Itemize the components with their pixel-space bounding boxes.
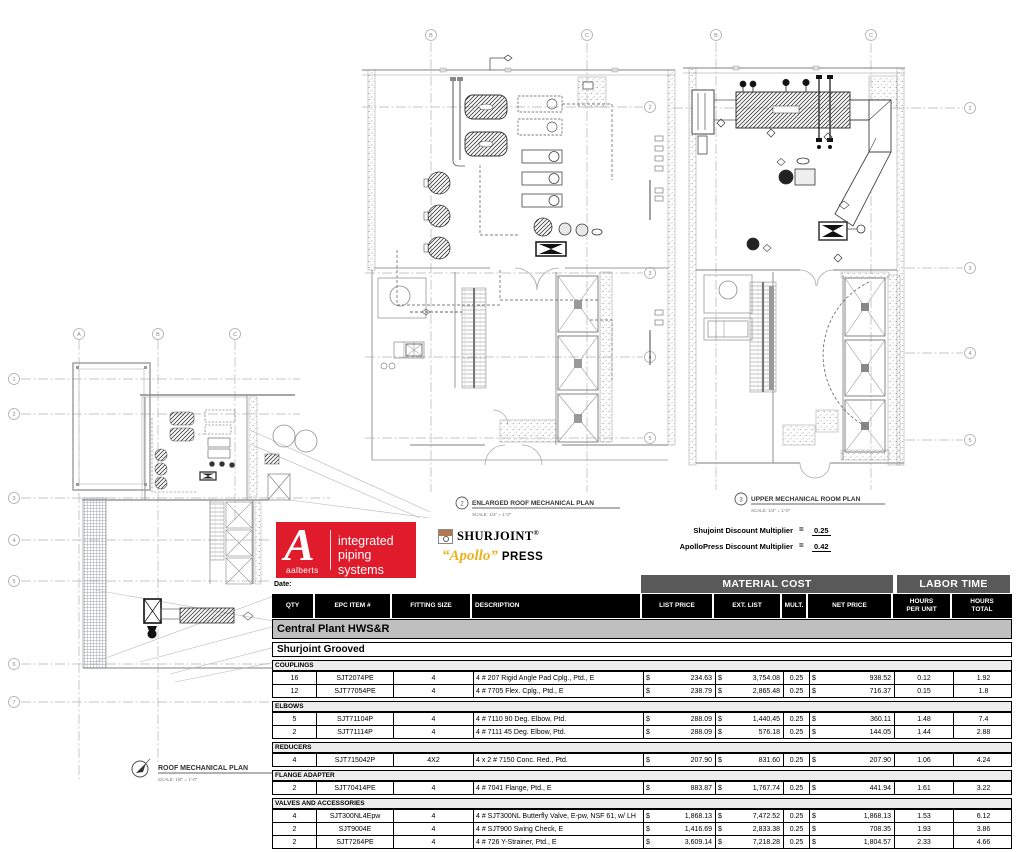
epc-cell: SJT7264PE — [316, 836, 393, 848]
grid-bubbles: A B C 1 2 3 4 5 6 7 — [9, 329, 241, 708]
storage-tanks — [424, 172, 450, 259]
list-cell: $288.09 — [643, 726, 715, 738]
room-walls — [362, 68, 675, 460]
desc-cell: 4 # 7705 Flex. Cplg., Ptd., E — [473, 685, 643, 697]
desc-cell: 4 # SJT900 Swing Check, E — [473, 823, 643, 835]
list-cell: $207.90 — [643, 754, 715, 766]
list-cell: $883.87 — [643, 782, 715, 794]
desc-cell: 4 # 207 Rigid Angle Pad Cplg., Ptd., E — [473, 672, 643, 684]
table-row: 2SJT71114P44 # 7111 45 Deg. Elbow, Ptd.$… — [273, 725, 1011, 738]
list-cell: $1,868.13 — [643, 810, 715, 822]
mult-cell: 0.25 — [783, 836, 809, 848]
size-cell: 4 — [393, 810, 473, 822]
svg-text:C: C — [869, 33, 873, 39]
hpu-cell: 1.48 — [894, 713, 953, 725]
tagline-line2: piping systems — [338, 548, 416, 577]
table-row: 4SJT715042P4X24 x 2 # 7150 Conc. Red., P… — [273, 754, 1011, 766]
aalberts-tagline: integrated piping systems — [338, 534, 416, 577]
category-row: VALVES AND ACCESSORIES — [272, 798, 1012, 809]
category-rows: 4SJT300NL4Epw44 # SJT300NL Butterfly Val… — [272, 809, 1012, 849]
cost-table-body: Central Plant HWS&R Shurjoint Grooved CO… — [272, 619, 1012, 852]
header-cell-size: FITTING SIZE — [392, 594, 472, 618]
epc-cell: SJT70414PE — [316, 782, 393, 794]
ext-cell: $7,218.28 — [715, 836, 783, 848]
table-row: 2SJT9004E44 # SJT900 Swing Check, E$1,41… — [273, 822, 1011, 835]
svg-text:2: 2 — [460, 502, 464, 508]
product-family-row: Shurjoint Grooved — [272, 642, 1012, 657]
qty-cell: 4 — [273, 754, 316, 766]
plan1-title-block: ROOF MECHANICAL PLAN SCALE: 1/8" = 1'-0" — [132, 759, 286, 782]
ext-cell: $2,865.48 — [715, 685, 783, 697]
aalberts-brand: aalberts — [286, 565, 319, 575]
hpu-cell: 1.44 — [894, 726, 953, 738]
mult-cell: 0.25 — [783, 810, 809, 822]
mult-cell: 0.25 — [783, 672, 809, 684]
material-cost-band: MATERIAL COST — [641, 575, 893, 593]
category-rows: 16SJT2074PE44 # 207 Rigid Angle Pad Cplg… — [272, 671, 1012, 698]
mult-cell: 0.25 — [783, 754, 809, 766]
svg-text:5: 5 — [968, 438, 971, 444]
hpu-cell: 1.61 — [894, 782, 953, 794]
desc-cell: 4 x 2 # 7150 Conc. Red., Ptd. — [473, 754, 643, 766]
lower-floor — [704, 272, 838, 463]
apollopress-multiplier-value: 0.42 — [812, 542, 831, 552]
fans-and-separator — [534, 218, 602, 256]
svg-text:2: 2 — [648, 105, 651, 111]
svg-text:4: 4 — [12, 538, 15, 544]
boiler-piping — [450, 77, 465, 166]
header-cell-desc: DESCRIPTION — [472, 594, 642, 618]
elevator-bank — [556, 272, 612, 445]
epc-cell: SJT71104P — [316, 713, 393, 725]
crosshatch-roof-strip — [83, 498, 106, 668]
qty-cell: 16 — [273, 672, 316, 684]
header-cell-list: LIST PRICE — [642, 594, 714, 618]
net-cell: $716.37 — [809, 685, 894, 697]
svg-text:C: C — [585, 33, 589, 39]
net-cell: $360.11 — [809, 713, 894, 725]
ext-cell: $576.18 — [715, 726, 783, 738]
hpu-cell: 2.33 — [894, 836, 953, 848]
hpu-cell: 0.12 — [894, 672, 953, 684]
epc-cell: SJT715042P — [316, 754, 393, 766]
table-row: 16SJT2074PE44 # 207 Rigid Angle Pad Cplg… — [273, 672, 1011, 684]
aalberts-logo: A aalberts integrated piping systems — [276, 522, 416, 578]
qty-cell: 2 — [273, 836, 316, 848]
svg-text:7: 7 — [12, 700, 15, 706]
roof-parapet — [73, 363, 150, 490]
enlarged-roof-mechanical-plan-drawing: B C 2 3 4 5 — [350, 20, 680, 520]
category-rows: 5SJT71104P44 # 7110 90 Deg. Elbow, Ptd.$… — [272, 712, 1012, 739]
svg-text:A: A — [77, 332, 81, 338]
plan3-title-block: 3 UPPER MECHANICAL ROOM PLAN SCALE: 1/4"… — [735, 493, 885, 513]
svg-text:ROOF MECHANICAL PLAN: ROOF MECHANICAL PLAN — [158, 765, 248, 772]
net-cell: $708.35 — [809, 823, 894, 835]
category-row: FLANGE ADAPTER — [272, 770, 1012, 781]
size-cell: 4 — [393, 782, 473, 794]
hpu-cell: 1.06 — [894, 754, 953, 766]
shurjoint-multiplier-value: 0.25 — [812, 526, 831, 536]
ht-cell: 1.8 — [953, 685, 1013, 697]
shurjoint-name: SHURJOINT® — [457, 529, 539, 544]
svg-text:SCALE: 1/4" = 1'-0": SCALE: 1/4" = 1'-0" — [472, 512, 512, 517]
ht-cell: 1.92 — [953, 672, 1013, 684]
elevator-bank — [823, 272, 900, 465]
mini-stair-elevators — [210, 502, 252, 584]
svg-text:B: B — [156, 332, 160, 338]
epc-cell: SJT300NL4Epw — [316, 810, 393, 822]
net-cell: $441.94 — [809, 782, 894, 794]
ahu-valves — [740, 79, 809, 92]
rooftop-units-right — [265, 425, 317, 500]
list-cell: $238.79 — [643, 685, 715, 697]
header-cell-net: NET PRICE — [808, 594, 893, 618]
mult-cell: 0.25 — [783, 726, 809, 738]
list-cell: $234.63 — [643, 672, 715, 684]
table-sections: COUPLINGS16SJT2074PE44 # 207 Rigid Angle… — [272, 660, 1012, 849]
system-title-row: Central Plant HWS&R — [272, 619, 1012, 639]
header-cell-hpu: HOURSPER UNIT — [893, 594, 952, 618]
upper-mechanical-room-plan-drawing: B C 2 3 4 5 — [673, 20, 1021, 514]
flag-symbol — [490, 55, 512, 70]
apollopress-multiplier-equals: = — [799, 541, 804, 550]
mult-cell: 0.25 — [783, 685, 809, 697]
sheet-canvas: { "drawings": { "plan1": { "title": "ROO… — [0, 0, 1021, 840]
header-cell-ext: EXT. LIST — [714, 594, 782, 618]
ht-cell: 7.4 — [953, 713, 1013, 725]
date-label: Date: — [274, 581, 292, 588]
size-cell: 4 — [393, 672, 473, 684]
desc-cell: 4 # 726 Y-Strainer, Ptd., E — [473, 836, 643, 848]
qty-cell: 5 — [273, 713, 316, 725]
header-cell-epc: EPC ITEM # — [315, 594, 392, 618]
apollo-script: “Apollo” — [442, 548, 498, 565]
header-cell-mult: MULT. — [782, 594, 808, 618]
svg-text:2: 2 — [968, 106, 971, 112]
epc-cell: SJT77054PE — [316, 685, 393, 697]
size-cell: 4X2 — [393, 754, 473, 766]
ext-cell: $831.60 — [715, 754, 783, 766]
apollo-press-logo: “Apollo” PRESS — [442, 548, 543, 565]
aalberts-a-mark: A — [284, 522, 315, 571]
category-row: COUPLINGS — [272, 660, 1012, 671]
header-cell-qty: QTY — [272, 594, 315, 618]
epc-cell: SJT9004E — [316, 823, 393, 835]
table-row: 4SJT300NL4Epw44 # SJT300NL Butterfly Val… — [273, 810, 1011, 822]
ht-cell: 6.12 — [953, 810, 1013, 822]
ht-cell: 4.66 — [953, 836, 1013, 848]
size-cell: 4 — [393, 726, 473, 738]
svg-text:5: 5 — [12, 579, 15, 585]
mini-mechanical-equipment — [152, 410, 235, 492]
svg-text:B: B — [714, 33, 718, 39]
svg-text:B: B — [429, 33, 433, 39]
hpu-cell: 0.15 — [894, 685, 953, 697]
list-cell: $1,416.69 — [643, 823, 715, 835]
cost-sheet-panel: A aalberts integrated piping systems SHU… — [272, 518, 1012, 838]
logo-divider — [330, 530, 331, 570]
category-row: ELBOWS — [272, 701, 1012, 712]
ext-cell: $1,767.74 — [715, 782, 783, 794]
svg-text:UPPER MECHANICAL ROOM PLAN: UPPER MECHANICAL ROOM PLAN — [751, 496, 861, 503]
table-row: 5SJT71104P44 # 7110 90 Deg. Elbow, Ptd.$… — [273, 713, 1011, 725]
category-rows: 2SJT70414PE44 # 7041 Flange, Ptd., E$883… — [272, 781, 1012, 795]
table-row: 12SJT77054PE44 # 7705 Flex. Cplg., Ptd.,… — [273, 684, 1011, 697]
svg-text:6: 6 — [12, 662, 15, 668]
riser-tags — [650, 136, 663, 365]
qty-cell: 2 — [273, 726, 316, 738]
return-fan — [819, 222, 865, 240]
ext-cell: $3,754.08 — [715, 672, 783, 684]
svg-text:3: 3 — [648, 271, 651, 277]
svg-text:2: 2 — [12, 412, 15, 418]
ext-cell: $1,440.45 — [715, 713, 783, 725]
svg-text:C: C — [233, 332, 237, 338]
table-row: 2SJT70414PE44 # 7041 Flange, Ptd., E$883… — [273, 782, 1011, 794]
svg-text:ENLARGED ROOF MECHANICAL PLAN: ENLARGED ROOF MECHANICAL PLAN — [472, 500, 594, 507]
net-cell: $207.90 — [809, 754, 894, 766]
mult-cell: 0.25 — [783, 823, 809, 835]
epc-cell: SJT2074PE — [316, 672, 393, 684]
boilers — [465, 95, 507, 156]
list-cell: $288.09 — [643, 713, 715, 725]
shurjoint-multiplier-equals: = — [799, 525, 804, 534]
size-cell: 4 — [393, 713, 473, 725]
size-cell: 4 — [393, 823, 473, 835]
net-cell: $1,868.13 — [809, 810, 894, 822]
header-cell-ht: HOURSTOTAL — [952, 594, 1012, 618]
list-cell: $3,609.14 — [643, 836, 715, 848]
svg-text:3: 3 — [12, 496, 15, 502]
apollopress-multiplier-label: ApolloPress Discount Multiplier — [598, 542, 793, 551]
hpu-cell: 1.53 — [894, 810, 953, 822]
exhaust-fan-assembly — [144, 599, 253, 639]
air-separator-units — [518, 96, 562, 135]
epc-cell: SJT71114P — [316, 726, 393, 738]
labor-time-band: LABOR TIME — [897, 575, 1010, 593]
column-header-row: QTYEPC ITEM #FITTING SIZEDESCRIPTIONLIST… — [272, 594, 1012, 618]
category-row: REDUCERS — [272, 742, 1012, 753]
mult-cell: 0.25 — [783, 713, 809, 725]
table-row: 2SJT7264PE44 # 726 Y-Strainer, Ptd., E$3… — [273, 835, 1011, 848]
size-cell: 4 — [393, 685, 473, 697]
pump-assembly — [747, 158, 815, 252]
apollo-press-label: PRESS — [502, 551, 544, 563]
pump-units — [522, 150, 562, 207]
size-cell: 4 — [393, 836, 473, 848]
net-cell: $144.05 — [809, 726, 894, 738]
ht-cell: 3.86 — [953, 823, 1013, 835]
ext-cell: $2,833.38 — [715, 823, 783, 835]
ht-cell: 3.22 — [953, 782, 1013, 794]
qty-cell: 2 — [273, 823, 316, 835]
svg-text:SCALE: 1/4" = 1'-0": SCALE: 1/4" = 1'-0" — [751, 508, 791, 513]
qty-cell: 2 — [273, 782, 316, 794]
hpu-cell: 1.93 — [894, 823, 953, 835]
desc-cell: 4 # 7110 90 Deg. Elbow, Ptd. — [473, 713, 643, 725]
tagline-line1: integrated — [338, 534, 416, 548]
shurjoint-icon — [438, 529, 453, 544]
svg-text:4: 4 — [968, 351, 971, 357]
svg-text:SCALE: 1/8" = 1'-0": SCALE: 1/8" = 1'-0" — [158, 777, 198, 782]
north-arrow-icon — [132, 759, 150, 777]
qty-cell: 12 — [273, 685, 316, 697]
shurjoint-logo: SHURJOINT® — [438, 529, 539, 544]
desc-cell: 4 # 7041 Flange, Ptd., E — [473, 782, 643, 794]
ext-cell: $7,472.52 — [715, 810, 783, 822]
qty-cell: 4 — [273, 810, 316, 822]
net-cell: $1,804.57 — [809, 836, 894, 848]
svg-text:3: 3 — [739, 498, 743, 504]
plan2-title-block: 2 ENLARGED ROOF MECHANICAL PLAN SCALE: 1… — [456, 497, 620, 517]
svg-text:1: 1 — [12, 377, 15, 383]
desc-cell: 4 # SJT300NL Butterfly Valve, E-pw, NSF … — [473, 810, 643, 822]
desc-cell: 4 # 7111 45 Deg. Elbow, Ptd. — [473, 726, 643, 738]
shurjoint-multiplier-label: Shujoint Discount Multiplier — [598, 526, 793, 535]
svg-text:5: 5 — [648, 436, 651, 442]
ht-cell: 4.24 — [953, 754, 1013, 766]
category-rows: 4SJT715042P4X24 x 2 # 7150 Conc. Red., P… — [272, 753, 1012, 767]
ht-cell: 2.88 — [953, 726, 1013, 738]
mult-cell: 0.25 — [783, 782, 809, 794]
svg-text:3: 3 — [968, 266, 971, 272]
doors — [800, 270, 833, 478]
net-cell: $938.52 — [809, 672, 894, 684]
